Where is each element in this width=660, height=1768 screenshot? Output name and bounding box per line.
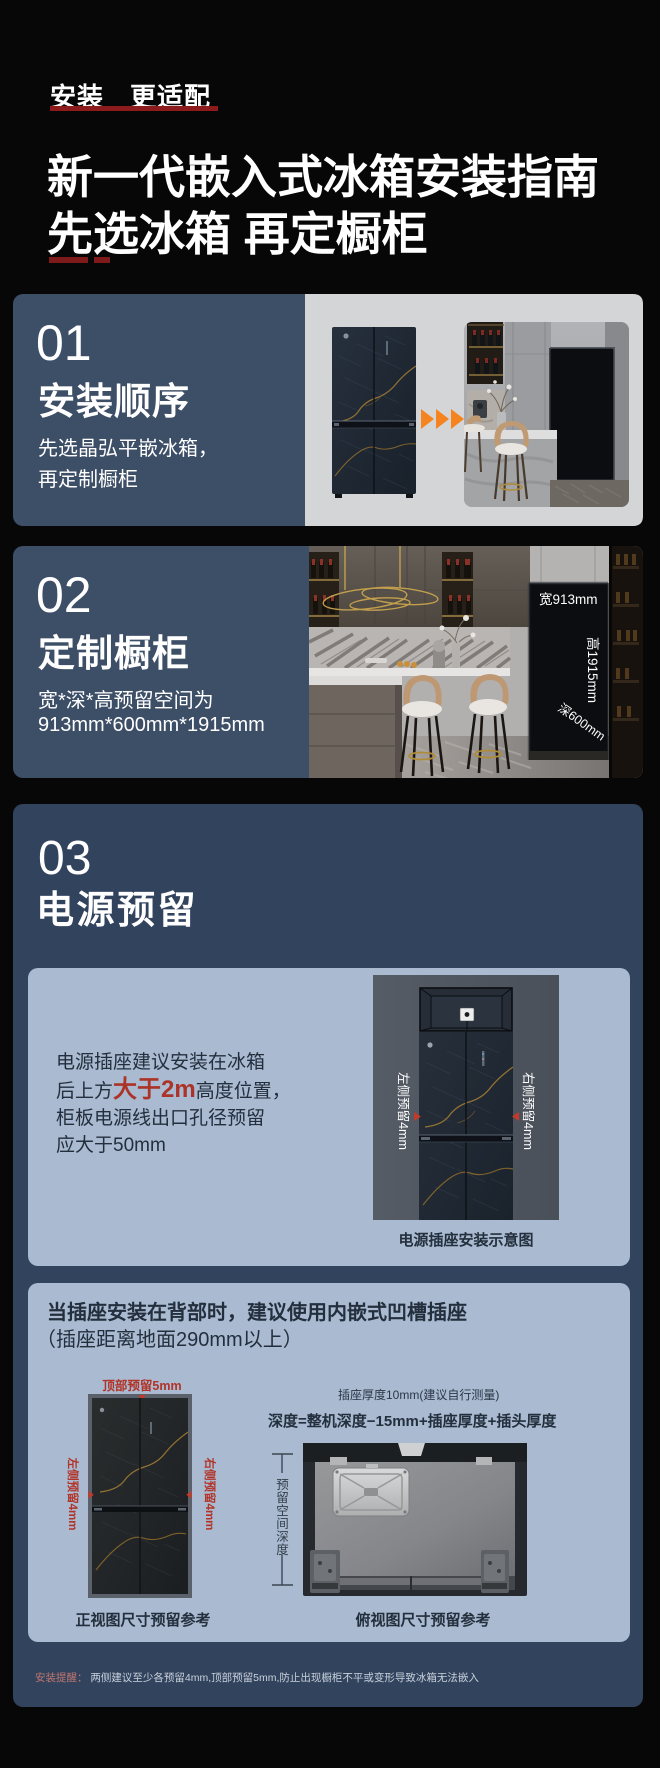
svg-text:右侧预留4mm: 右侧预留4mm	[203, 1457, 217, 1531]
svg-text:高1915mm: 高1915mm	[585, 637, 601, 703]
svg-text:宽913mm: 宽913mm	[539, 591, 598, 607]
svg-text:右侧预留4mm: 右侧预留4mm	[521, 1072, 536, 1150]
svg-text:左侧预留4mm: 左侧预留4mm	[66, 1457, 80, 1531]
svg-text:度: 度	[276, 1542, 289, 1557]
svg-text:顶部预留5mm: 顶部预留5mm	[102, 1378, 181, 1393]
svg-text:深: 深	[276, 1530, 289, 1544]
svg-text:留: 留	[276, 1491, 289, 1505]
svg-text:预: 预	[276, 1478, 289, 1492]
svg-text:左侧预留4mm: 左侧预留4mm	[396, 1072, 411, 1150]
svg-text:空: 空	[276, 1504, 289, 1518]
svg-text:间: 间	[276, 1517, 289, 1531]
